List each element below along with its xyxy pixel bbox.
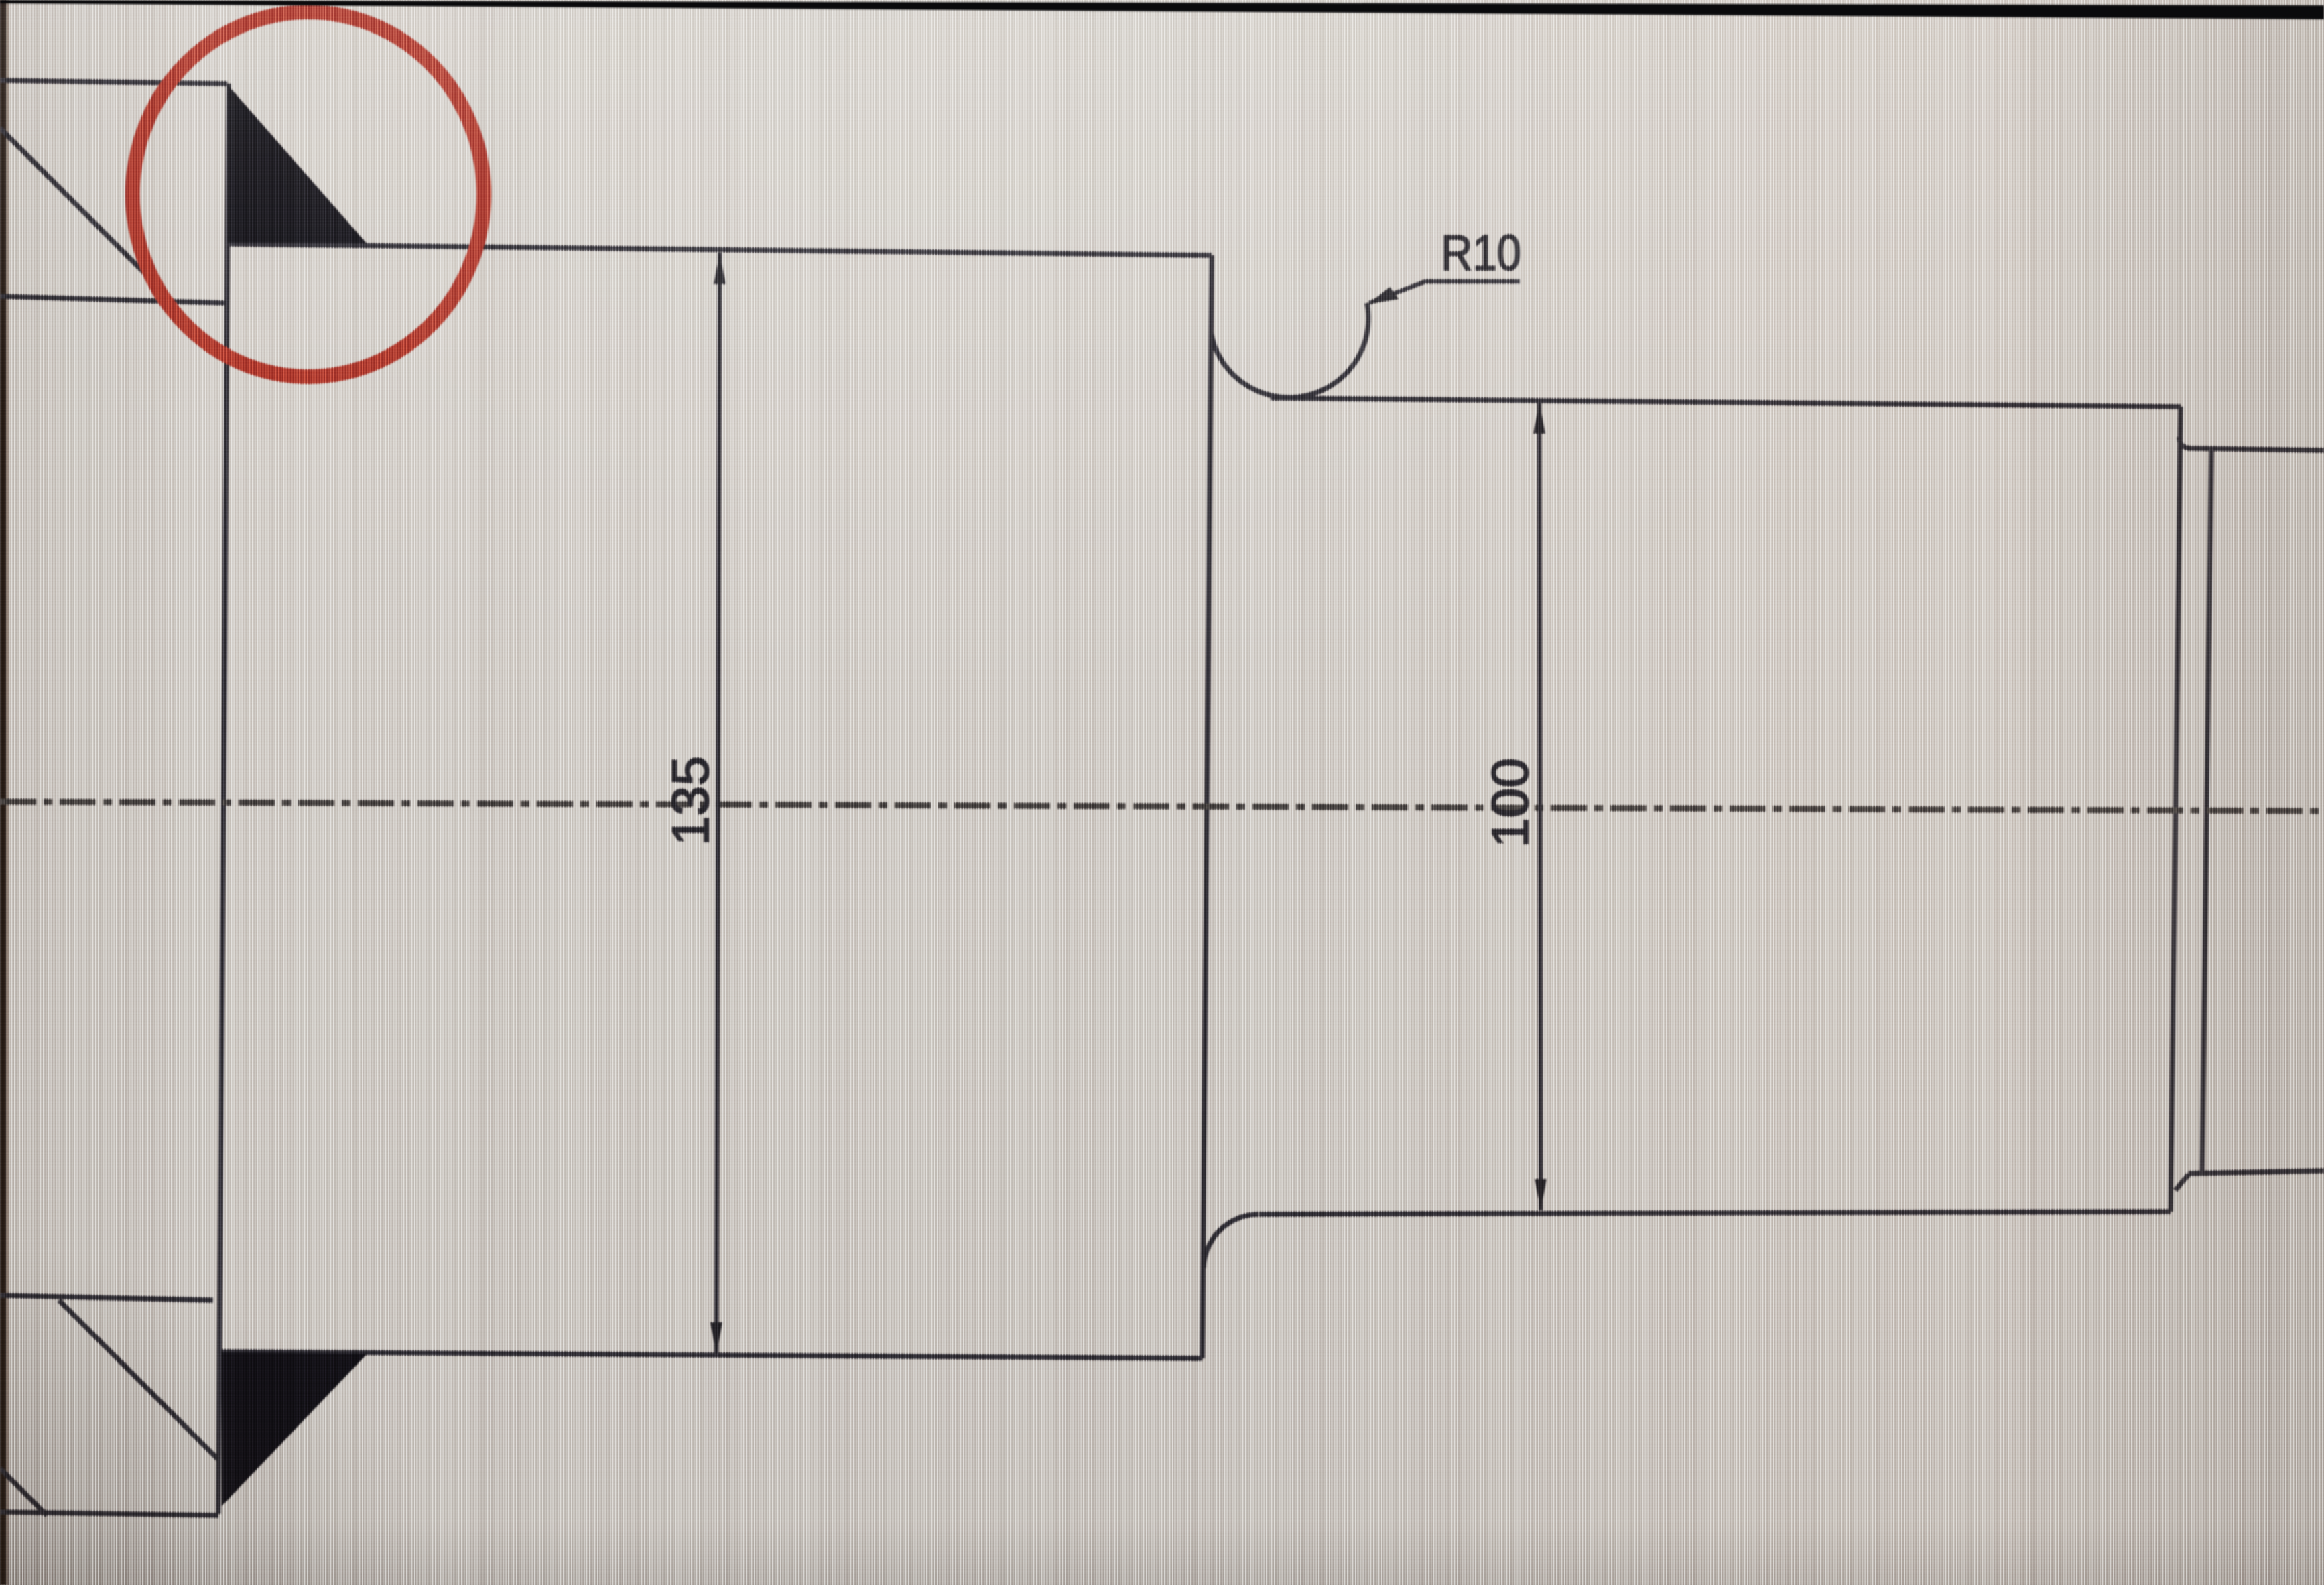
svg-text:100: 100 [1482,758,1539,848]
svg-text:R10: R10 [1441,225,1521,281]
svg-text:135: 135 [662,756,720,846]
